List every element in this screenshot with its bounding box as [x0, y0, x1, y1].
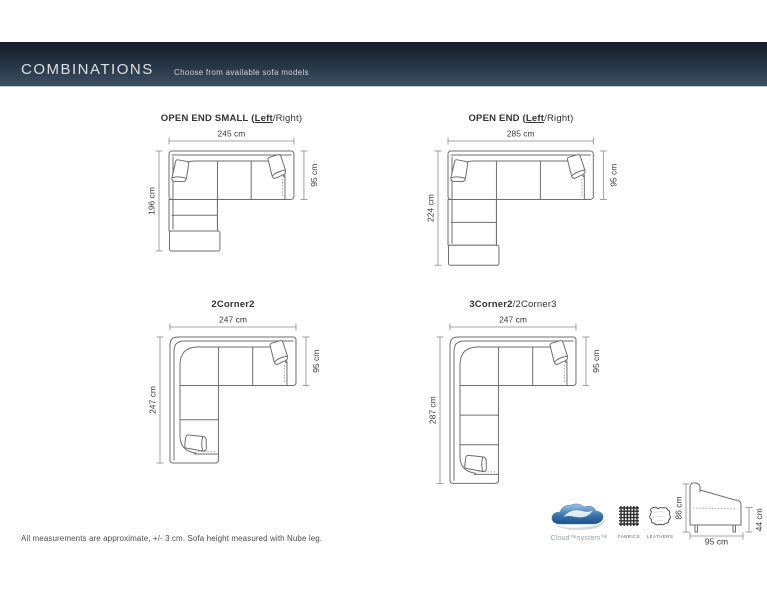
- depth-dimension-label: 95 cm: [311, 350, 321, 373]
- depth-dimension-label: 95 cm: [309, 164, 319, 187]
- diagram-open-end-small: OPEN END SMALL (Left/Right) 245 cm 196 c…: [143, 113, 320, 254]
- width-dimension: 247 cm: [170, 315, 296, 331]
- seat-height-dimension: 44 cm: [746, 508, 764, 533]
- depth-dimension-label: 95 cm: [591, 350, 601, 373]
- sofa-top-view-drawing: 285 cm 224 cm 95 cm: [422, 129, 620, 268]
- cloud-logo-label: Cloud™system™: [548, 535, 610, 542]
- title-text: OPEN END SMALL (: [161, 113, 255, 124]
- sofa-outline: [169, 151, 294, 251]
- height-dimension: 196 cm: [147, 151, 163, 251]
- height-dimension-label: 287 cm: [428, 396, 438, 424]
- cloud-icon: [548, 502, 610, 532]
- depth-dimension: 95 cm: [600, 151, 618, 199]
- title-text: 3Corner2: [469, 299, 512, 310]
- width-dimension: 247 cm: [450, 315, 576, 330]
- sofa-top-view-drawing: 247 cm 247 cm 95 cm: [144, 315, 322, 466]
- width-dimension-label: 247 cm: [219, 315, 247, 325]
- leathers-icon: [648, 506, 672, 526]
- diagram-title: 3Corner2/2Corner3: [424, 299, 602, 311]
- catalog-page: COMBINATIONS Choose from available sofa …: [0, 0, 767, 598]
- sofa-outline: [170, 337, 296, 463]
- page-title: COMBINATIONS: [21, 61, 154, 78]
- page-subtitle: Choose from available sofa models: [174, 68, 309, 77]
- height-dimension-label: 247 cm: [148, 386, 158, 414]
- depth-dimension: 95 cm: [300, 151, 318, 199]
- sofa-depth-dimension: 95 cm: [690, 533, 743, 547]
- title-underlined-text: Left: [255, 113, 273, 124]
- header-band: COMBINATIONS Choose from available sofa …: [0, 42, 767, 87]
- title-underlined-text: Left: [526, 113, 544, 124]
- height-dimension: 247 cm: [148, 337, 164, 463]
- height-dimension: 224 cm: [426, 151, 442, 265]
- width-dimension: 245 cm: [169, 129, 294, 145]
- title-suffix-text: /2Corner3: [513, 299, 557, 310]
- sofa-depth-dimension-label: 95 cm: [705, 537, 728, 547]
- title-text: OPEN END (: [468, 113, 525, 124]
- sofa-top-view-drawing: 245 cm 196 cm 95 cm: [143, 129, 320, 254]
- sofa-outline: [448, 151, 593, 265]
- cloud-system-logo: Cloud™system™: [548, 502, 610, 542]
- depth-dimension-label: 95 cm: [609, 164, 619, 187]
- title-suffix-text: /Right): [544, 113, 573, 124]
- sofa-side-view: 86 cm 44 cm 95 cm: [675, 478, 763, 553]
- diagram-2corner2: 2Corner2 247 cm 247 cm 95 cm: [144, 299, 322, 466]
- diagram-3corner2-2corner3: 3Corner2/2Corner3 247 cm 287 cm 95 cm: [424, 299, 602, 486]
- seat-height-dimension-label: 44 cm: [754, 508, 763, 531]
- diagram-title: OPEN END (Left/Right): [422, 113, 620, 125]
- height-dimension-label: 196 cm: [147, 187, 157, 215]
- sofa-side-outline: [690, 483, 741, 532]
- measurements-note: All measurements are approximate, +/- 3 …: [21, 534, 322, 543]
- sofa-top-view-drawing: 247 cm 287 cm 95 cm: [424, 315, 602, 486]
- diagram-open-end: OPEN END (Left/Right) 285 cm 224 cm 95 c…: [422, 113, 620, 268]
- width-dimension-label: 247 cm: [499, 315, 527, 324]
- width-dimension: 285 cm: [448, 129, 593, 144]
- sofa-outline: [450, 337, 576, 483]
- height-dimension-label: 224 cm: [426, 194, 436, 222]
- diagram-title: OPEN END SMALL (Left/Right): [143, 113, 320, 125]
- depth-dimension: 95 cm: [302, 337, 321, 385]
- depth-dimension: 95 cm: [582, 337, 600, 385]
- leathers-label: LEATHERS: [642, 534, 678, 539]
- diagram-title: 2Corner2: [144, 299, 322, 311]
- sofa-height-dimension-label: 86 cm: [675, 496, 684, 519]
- title-text: 2Corner2: [211, 299, 254, 310]
- width-dimension-label: 285 cm: [507, 129, 535, 138]
- height-dimension: 287 cm: [428, 337, 444, 483]
- width-dimension-label: 245 cm: [218, 129, 246, 139]
- title-suffix-text: /Right): [273, 113, 302, 124]
- leathers-swatch: LEATHERS: [642, 506, 678, 539]
- sofa-height-dimension: 86 cm: [675, 484, 690, 532]
- fabrics-icon: [619, 506, 639, 526]
